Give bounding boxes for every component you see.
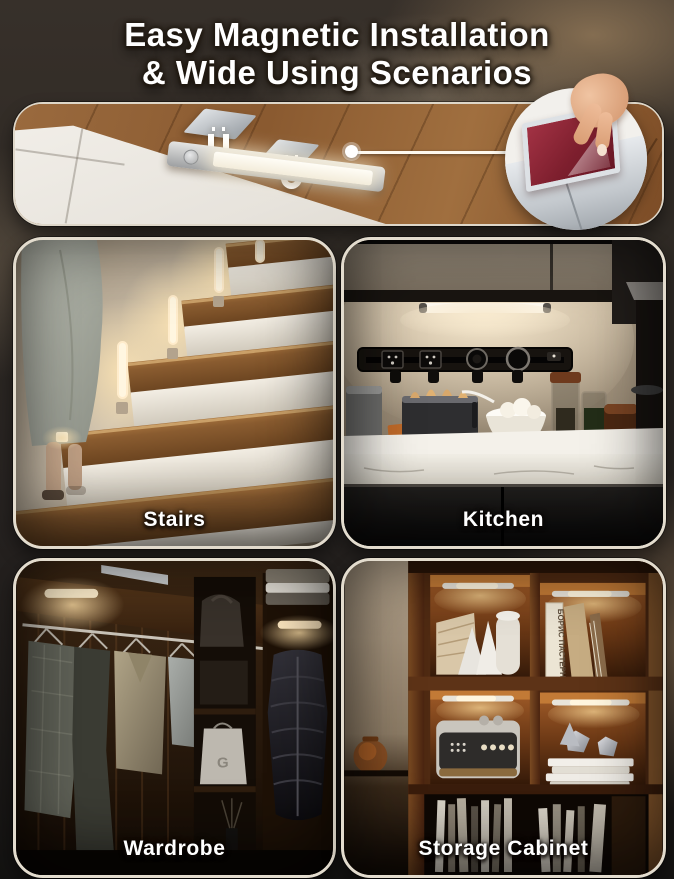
scene-label-storage: Storage Cabinet: [344, 837, 663, 861]
cubby-top-right: БОРИС ПАСТЕРНАК: [540, 583, 646, 689]
cubby-bottom-right: [540, 693, 646, 787]
cubby-top-left: [430, 575, 530, 677]
bag-letter: G: [217, 754, 229, 771]
scene-wardrobe: G Wardrobe: [13, 558, 336, 878]
adhesive-peel-inset: [505, 88, 647, 230]
storage-illustration: БОРИС ПАСТЕРНАК: [344, 561, 663, 875]
stairs-illustration: [16, 240, 333, 546]
product-infographic: Easy Magnetic Installation & Wide Using …: [0, 0, 674, 879]
shelf-column: G: [194, 577, 256, 875]
cubby-bottom-left: [430, 689, 530, 785]
scene-kitchen: Kitchen: [341, 237, 666, 549]
title-line-1: Easy Magnetic Installation: [0, 16, 674, 54]
right-column: [260, 569, 333, 875]
scene-label-wardrobe: Wardrobe: [16, 837, 333, 861]
title-line-2: & Wide Using Scenarios: [0, 54, 674, 92]
callout-line: [356, 151, 508, 154]
wardrobe-illustration: G: [16, 561, 333, 875]
installation-banner: [13, 102, 664, 226]
scene-storage-cabinet: БОРИС ПАСТЕРНАК: [341, 558, 666, 878]
scene-label-kitchen: Kitchen: [344, 508, 663, 532]
scene-label-stairs: Stairs: [16, 508, 333, 532]
callout-dot: [345, 145, 358, 158]
fingernail: [597, 144, 607, 156]
motion-sensor-icon: [183, 149, 200, 166]
kitchen-illustration: [344, 240, 663, 546]
page-title: Easy Magnetic Installation & Wide Using …: [0, 16, 674, 92]
scene-stairs: Stairs: [13, 237, 336, 549]
